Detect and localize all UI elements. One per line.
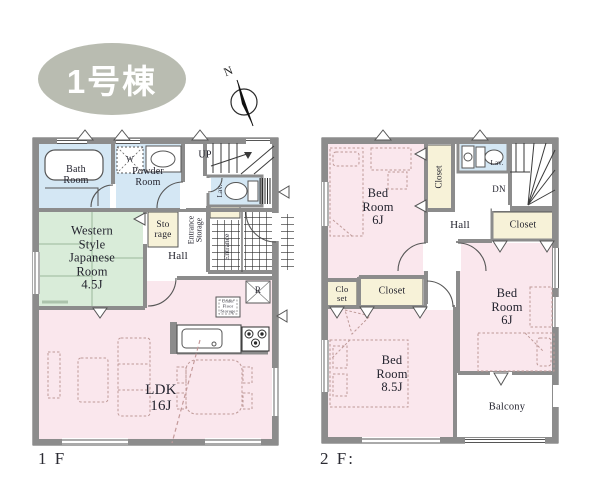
stairs-up-label: UP [198, 151, 211, 162]
washer-label: W [126, 156, 134, 165]
floorplan-page: 1号棟 N Bath Room Powder Room W UP Lav. En… [0, 0, 600, 497]
room-label-japanese: Western Style Japanese Room 4.5J [69, 224, 115, 292]
room-label-closet-small: Clo set [336, 285, 349, 303]
room-label-closet-top: Closet [434, 165, 443, 188]
room-label-bedroom3: Bed Room 8.5J [376, 354, 407, 395]
room-label-balcony: Balcony [489, 401, 525, 412]
floor2-stairs [510, 143, 555, 205]
room-label-hall-1f: Hall [168, 251, 188, 263]
toilet-icon [225, 181, 258, 201]
floor1-caption: 1 F [38, 449, 66, 469]
room-label-bedroom1: Bed Room 6J [362, 187, 393, 228]
label-entrance-storage: Entrance Storage [188, 216, 205, 244]
underfloor-storage-label: Under Floor Storage [220, 300, 235, 315]
floor1-stairs [211, 143, 274, 174]
room-label-entrance: Entrance [223, 234, 231, 261]
room-label-lav-1f: Lav. [216, 184, 224, 197]
stairs-dn-label: DN [492, 185, 505, 195]
refrigerator-label: R [255, 286, 261, 296]
room-label-lav-2f: Lav. [491, 160, 504, 168]
room-label-closet-right: Closet [510, 221, 537, 232]
room-label-hall-2f: Hall [450, 220, 470, 232]
room-label-bath: Bath Room [63, 165, 88, 187]
kitchen-counter-icon [177, 325, 241, 353]
compass-icon [231, 80, 257, 126]
room-label-bedroom2: Bed Room 6J [491, 287, 522, 328]
building-number-badge: 1号棟 [38, 43, 186, 115]
room-label-powder: Powder Room [132, 167, 164, 189]
room-label-storage: Sto rage [154, 220, 171, 241]
room-label-closet-mid: Closet [379, 287, 406, 298]
stove-icon [242, 327, 269, 351]
lav2-sink-icon [462, 146, 474, 168]
room-label-ldk: LDK 16J [145, 382, 176, 414]
floor2-caption: 2 F: [320, 449, 355, 469]
